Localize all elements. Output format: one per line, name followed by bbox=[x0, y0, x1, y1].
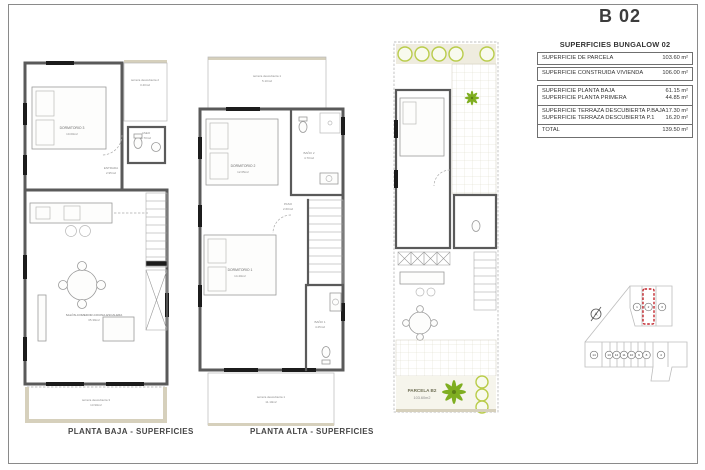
terrace-outline bbox=[208, 373, 334, 425]
row-value: 139.50 m² bbox=[662, 127, 688, 134]
row-label: SUPERFICIE PLANTA PRIMERA bbox=[542, 95, 627, 102]
window bbox=[198, 285, 202, 307]
window bbox=[341, 117, 345, 135]
row-label: SUPERFICIE TERRAZA DESCUBIERTA P.1 bbox=[542, 115, 654, 122]
svg-text:12: 12 bbox=[615, 353, 619, 357]
bed bbox=[400, 98, 444, 156]
toilet bbox=[299, 117, 307, 133]
room-area: 4.25m2 bbox=[315, 325, 325, 329]
caption-planta-alta: PLANTA ALTA - SUPERFICIES bbox=[250, 427, 374, 436]
bush-icon bbox=[476, 376, 488, 413]
lot-marker: 12 bbox=[613, 351, 621, 359]
window bbox=[23, 155, 27, 175]
room-label: BAÑO 1 bbox=[314, 319, 325, 324]
terrace-edge bbox=[163, 387, 167, 423]
lot-marker-highlighted: 2 bbox=[645, 303, 653, 311]
room-area: 13.90m2 bbox=[90, 403, 102, 407]
tiled-terrace bbox=[452, 64, 496, 194]
svg-text:A: A bbox=[595, 312, 598, 317]
terrace-outline bbox=[208, 57, 326, 109]
lot-marker: 8 bbox=[643, 351, 651, 359]
lower-block-outline bbox=[585, 342, 687, 381]
svg-text:9: 9 bbox=[638, 353, 640, 357]
room-label: ENTRADA bbox=[104, 166, 118, 170]
sink bbox=[330, 293, 341, 311]
row-value: 106.00 m² bbox=[662, 70, 688, 77]
room-label: terraza descubierta 3 bbox=[82, 398, 111, 402]
window bbox=[23, 337, 27, 361]
kitchen-counter bbox=[400, 272, 444, 296]
drawing-sheet: B 02 SUPERFICIES BUNGALOW 02 SUPERFICIE … bbox=[0, 0, 705, 470]
surfaces-table-title: SUPERFICIES BUNGALOW 02 bbox=[537, 40, 693, 49]
compass-icon: A bbox=[591, 307, 601, 321]
parcel-area: 103.60m2 bbox=[414, 396, 431, 400]
table-section-plantas: SUPERFICIE PLANTA BAJA 61.15 m² SUPERFIC… bbox=[538, 86, 692, 105]
floor-plan-planta-alta: terraza descubierta 1 5.10m2 BAÑO 2 4.70… bbox=[196, 55, 346, 430]
svg-text:14: 14 bbox=[592, 353, 596, 357]
lot-marker: 13 bbox=[605, 351, 613, 359]
door-swing bbox=[273, 215, 291, 233]
row-value: 103.60 m² bbox=[662, 55, 688, 62]
room-label: terraza descubierta 2 bbox=[131, 78, 160, 82]
surfaces-table: SUPERFICIES BUNGALOW 02 SUPERFICIE DE PA… bbox=[537, 40, 693, 140]
room-label: PASO bbox=[284, 202, 293, 206]
terrace-edge bbox=[124, 60, 167, 63]
room-label: DORMITORIO 3 bbox=[60, 126, 85, 130]
lot-marker: 11 bbox=[620, 351, 628, 359]
window bbox=[23, 255, 27, 279]
sofa bbox=[103, 317, 134, 341]
svg-text:3: 3 bbox=[661, 305, 663, 309]
room-label: DORMITORIO 1 bbox=[228, 268, 253, 272]
row-value: 44.85 m² bbox=[666, 95, 688, 102]
room-area: 12.65m2 bbox=[237, 170, 249, 174]
room-label: terraza descubierta 1 bbox=[257, 395, 286, 399]
terrace-edge bbox=[396, 409, 496, 412]
room-area: 2.95m2 bbox=[106, 171, 116, 175]
window bbox=[46, 382, 84, 386]
svg-text:8: 8 bbox=[646, 353, 648, 357]
bed bbox=[204, 235, 276, 295]
toilet bbox=[322, 347, 330, 365]
dining-table bbox=[403, 306, 438, 341]
window bbox=[394, 120, 398, 138]
svg-text:10: 10 bbox=[630, 353, 634, 357]
toilet bbox=[472, 221, 480, 232]
kitchen-counter bbox=[30, 203, 112, 237]
room-area: 35.39m2 bbox=[88, 318, 100, 322]
room-label: ASEO bbox=[142, 131, 151, 135]
lot-marker: 9 bbox=[635, 351, 643, 359]
staircase bbox=[146, 193, 167, 330]
lot-marker: 10 bbox=[628, 351, 636, 359]
room-area: 14.40m2 bbox=[234, 274, 246, 278]
window bbox=[394, 170, 398, 188]
svg-text:1: 1 bbox=[636, 305, 638, 309]
room-label: BAÑO 2 bbox=[303, 150, 314, 155]
lot-marker: 1 bbox=[633, 303, 641, 311]
lot-marker: 4 bbox=[657, 351, 665, 359]
room-area: 5.10m2 bbox=[262, 79, 272, 83]
room-area: 1.70m2 bbox=[141, 136, 151, 140]
room-label: DORMITORIO 2 bbox=[231, 164, 256, 168]
room-area: 4.70m2 bbox=[304, 156, 314, 160]
lot-marker: 3 bbox=[658, 303, 666, 311]
table-row-construida: SUPERFICIE CONSTRUIDA VIVIENDA 106.00 m² bbox=[537, 67, 693, 80]
row-label: SUPERFICIE DE PARCELA bbox=[542, 55, 613, 62]
shower bbox=[320, 113, 340, 133]
shelf-unit bbox=[38, 295, 46, 341]
table-section-terrazas: SUPERFICIE TERRAZA DESCUBIERTA P.BAJA 17… bbox=[538, 105, 692, 125]
row-label: SUPERFICIE PLANTA BAJA bbox=[542, 88, 615, 95]
terrace-edge bbox=[208, 423, 334, 426]
floor-plan-planta-baja: DORMITORIO 3 10.00m2 terraza descubierta… bbox=[22, 55, 170, 425]
window bbox=[198, 205, 202, 227]
svg-text:4: 4 bbox=[660, 353, 662, 357]
bed bbox=[206, 119, 278, 185]
sheet-title: B 02 bbox=[575, 6, 665, 27]
svg-text:13: 13 bbox=[607, 353, 611, 357]
table-group-detail: SUPERFICIE PLANTA BAJA 61.15 m² SUPERFIC… bbox=[537, 85, 693, 138]
table-row-parcela: SUPERFICIE DE PARCELA 103.60 m² bbox=[537, 52, 693, 65]
palm-tree-icon bbox=[442, 380, 466, 404]
window bbox=[224, 368, 258, 372]
svg-text:11: 11 bbox=[622, 353, 625, 357]
room-area: 10.00m2 bbox=[66, 132, 78, 136]
bed bbox=[32, 87, 106, 149]
window bbox=[226, 107, 260, 111]
room-label: SALÓN-COMEDOR-COCINA-ESCALERA bbox=[66, 312, 123, 317]
row-label: TOTAL bbox=[542, 127, 560, 134]
row-label: SUPERFICIE CONSTRUIDA VIVIENDA bbox=[542, 70, 643, 77]
room-area: 11.10m2 bbox=[265, 400, 277, 404]
svg-text:2: 2 bbox=[648, 305, 650, 309]
caption-planta-baja: PLANTA BAJA - SUPERFICIES bbox=[68, 427, 194, 436]
window bbox=[282, 368, 316, 372]
terrace-edge bbox=[25, 419, 167, 423]
dining-table bbox=[59, 262, 106, 309]
window bbox=[23, 103, 27, 125]
terrace-edge bbox=[208, 57, 326, 60]
window bbox=[46, 61, 74, 65]
row-label: SUPERFICIE TERRAZA DESCUBIERTA P.BAJA bbox=[542, 108, 665, 115]
window bbox=[341, 303, 345, 321]
sink bbox=[320, 173, 338, 184]
room-area: 3.40m2 bbox=[140, 83, 150, 87]
parcel-label: PARCELA B2 bbox=[408, 388, 437, 393]
row-value: 16.20 m² bbox=[666, 115, 688, 122]
palm-tree-icon bbox=[465, 91, 479, 105]
sink bbox=[152, 143, 161, 152]
plot-plan: PARCELA B2 103.60m2 bbox=[392, 40, 500, 415]
row-value: 61.15 m² bbox=[666, 88, 688, 95]
deck-squares bbox=[398, 252, 450, 265]
staircase bbox=[308, 200, 343, 285]
table-section-total: TOTAL 139.50 m² bbox=[538, 124, 692, 136]
room-label: terraza descubierta 1 bbox=[253, 74, 282, 78]
window bbox=[198, 137, 202, 159]
row-value: 17.30 m² bbox=[666, 108, 688, 115]
window bbox=[106, 382, 144, 386]
site-location-map: A 1 2 3 14 13 12 11 10 9 8 4 bbox=[572, 280, 702, 400]
room-area: 2.60m2 bbox=[283, 207, 293, 211]
terrace-edge bbox=[25, 387, 29, 423]
door-swing bbox=[434, 170, 450, 186]
tiled-terrace bbox=[396, 340, 496, 376]
terrace-outline bbox=[124, 63, 167, 121]
staircase bbox=[474, 252, 496, 310]
lot-marker: 14 bbox=[590, 351, 598, 359]
